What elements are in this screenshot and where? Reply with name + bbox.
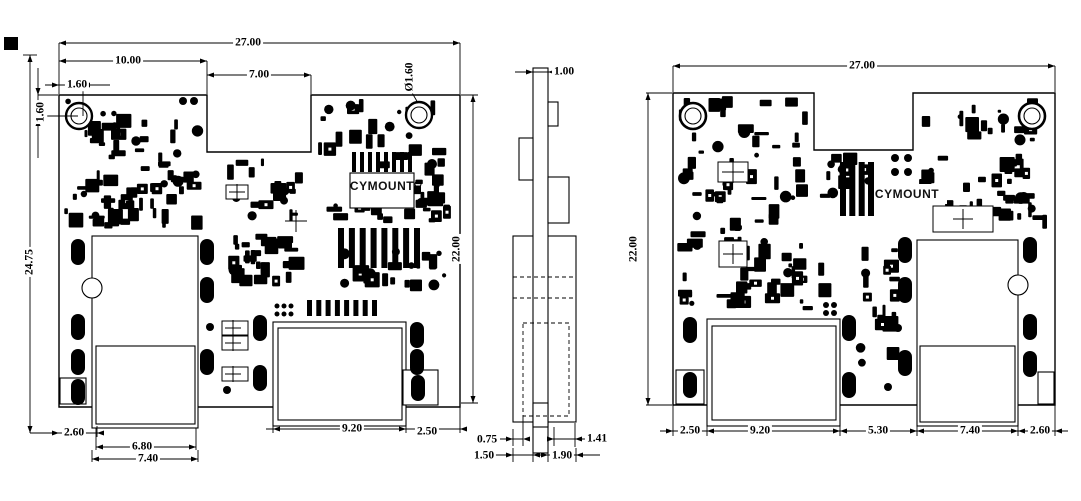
dim-left-slot-width: 7.40 bbox=[136, 453, 160, 465]
dim-left-slot-inner-width: 6.80 bbox=[130, 441, 154, 453]
right-notch-semicircle bbox=[1008, 275, 1028, 295]
dim-board-height-top: 22.00 bbox=[451, 234, 463, 264]
dim-side-offset-b: 1.41 bbox=[585, 433, 609, 445]
dim-left-width: 10.00 bbox=[113, 55, 143, 67]
dim-bv-left-margin: 2.50 bbox=[678, 425, 702, 437]
pcb-drawing-svg bbox=[0, 0, 1081, 501]
left-notch-semicircle bbox=[82, 278, 102, 298]
bottom-view-board bbox=[673, 93, 1055, 426]
silkscreen-text-bottom-view: CYMOUNT bbox=[875, 188, 939, 200]
dim-overall-width-bottom: 27.00 bbox=[847, 60, 877, 72]
dim-notch-width: 7.00 bbox=[247, 69, 271, 81]
dim-side-offset-a: 0.75 bbox=[475, 434, 499, 446]
silkscreen-text-top-view: CYMOUNT bbox=[350, 180, 414, 192]
dim-overall-width-top: 27.00 bbox=[233, 37, 263, 49]
dim-bv-left-slot: 9.20 bbox=[748, 425, 772, 437]
pcb-drawing-canvas: 27.00 10.00 7.00 1.60 1.60 Ø1.60 24.75 2… bbox=[0, 0, 1081, 501]
dim-side-offset-d: 1.90 bbox=[550, 450, 574, 462]
dim-bv-right-slot: 7.40 bbox=[958, 425, 982, 437]
dim-hole-offset-x: 1.60 bbox=[65, 79, 89, 91]
dim-hole-offset-y: 1.60 bbox=[35, 100, 47, 124]
top-view-board bbox=[59, 95, 460, 428]
dim-bottom-right-margin: 2.50 bbox=[415, 426, 439, 438]
dim-board-thickness: 1.00 bbox=[552, 66, 576, 78]
dim-hole-diameter: Ø1.60 bbox=[404, 60, 416, 93]
dim-side-offset-c: 1.50 bbox=[472, 450, 496, 462]
dim-bv-right-margin: 2.60 bbox=[1028, 425, 1052, 437]
dim-bv-center-width: 5.30 bbox=[866, 425, 890, 437]
side-view-board-strip bbox=[533, 68, 548, 453]
dim-right-slot-width: 9.20 bbox=[340, 423, 364, 435]
dim-bottom-left-margin: 2.60 bbox=[62, 427, 86, 439]
side-view-board bbox=[513, 68, 576, 453]
dim-board-height-bottom: 22.00 bbox=[628, 234, 640, 264]
dim-total-height: 24.75 bbox=[24, 247, 36, 277]
